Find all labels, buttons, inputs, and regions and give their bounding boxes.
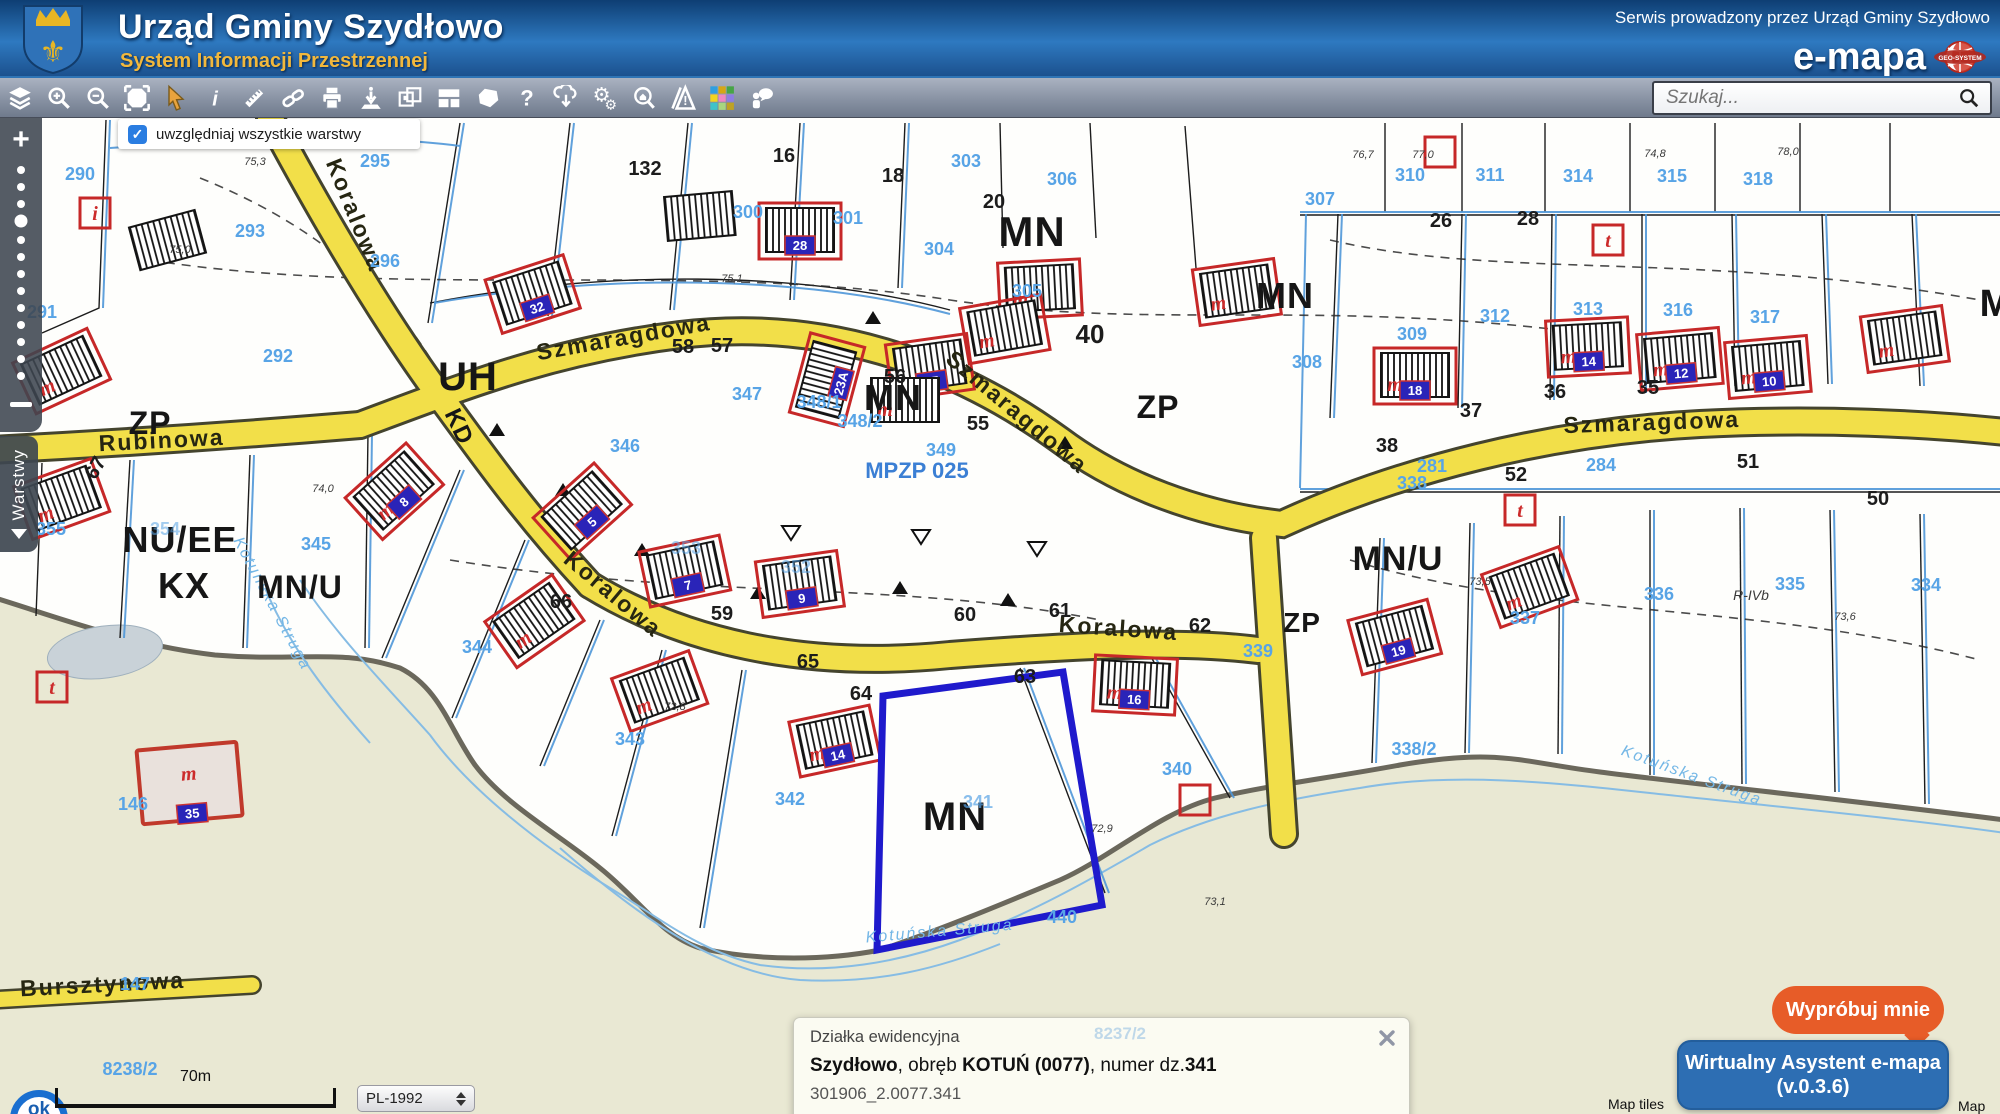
emapa-brand: e-mapa [1793,36,1926,79]
map-label-pn: 341 [963,792,993,812]
map-label-elev: 72,9 [1091,823,1112,835]
map-label-pn: 317 [1750,307,1780,327]
map-label-num: 35 [1637,377,1659,399]
map-label-num: 40 [1076,319,1105,349]
warnings-icon[interactable]: ! [669,83,697,113]
svg-text:m: m [180,762,197,785]
map-label-num: 132 [628,158,661,180]
compare-windows-icon[interactable] [396,83,424,113]
map-label-pn: 293 [235,221,265,241]
map-label-plan: MPZP 025 [865,458,969,483]
map-label-pn: 353 [671,538,701,558]
map-label-num: 16 [773,145,795,167]
map-label-pn: 337 [1510,608,1540,628]
map-svg: 3228m2523Ammmm18m14m12m10mm857m9m14mm161… [0,118,2000,1114]
svg-text:35: 35 [184,805,200,821]
map-label-pn: 340 [1162,759,1192,779]
map-label-pn: 146 [118,794,148,814]
svg-text:10: 10 [1761,373,1777,389]
measure-icon[interactable] [240,83,268,113]
map-label-zone: MN/U [257,569,343,605]
map-label-elev: 78,0 [1777,146,1799,158]
parcel-info-panel: 8237/2 Działka ewidencyjna Szydłowo, obr… [793,1017,1410,1114]
svg-text:m: m [1209,292,1227,316]
map-label-num: 55 [967,413,989,435]
map-label-pn: 334 [1911,575,1941,595]
ok-logo-label: ok [28,1099,50,1114]
map-label-pn: 313 [1573,299,1603,319]
map-label-pn: 312 [1480,306,1510,326]
map-label-pn: 343 [615,729,645,749]
building [664,191,736,241]
search-box [1652,81,1992,115]
assistant-version: (v.0.3.6) [1777,1075,1850,1099]
municipal-crest: ⚜ [22,4,84,74]
map-label-pn: 348/1 [796,392,841,412]
page-title: Urząd Gminy Szydłowo [118,8,504,47]
map-label-pn: 345 [301,534,331,554]
map-label-pn: 352 [781,557,811,577]
map-label-num: 51 [1737,451,1759,473]
map-label-num: 58 [672,336,694,358]
map-label-elev: 74,8 [1644,148,1666,160]
chevron-down-icon [11,529,27,539]
svg-text:18: 18 [1408,383,1422,398]
building: m18 [1374,348,1456,404]
map-label-elev: 72,8 [664,701,686,713]
full-extent-icon[interactable] [123,83,151,113]
crs-value: PL-1992 [366,1090,423,1107]
map-label-pn: 440 [1047,907,1077,927]
map-label-num: 28 [1517,208,1539,230]
map-label-pn: 292 [263,346,293,366]
polygon-icon[interactable] [474,83,502,113]
map-label-zone: ZP [129,405,172,441]
geosystem-logo-icon: GEO-SYSTEM [1932,40,1988,74]
map-label-num: 56 [884,366,906,388]
map-label-pn: 284 [1586,455,1616,475]
map-label-pn: 306 [1047,169,1077,189]
basemaps-grid-icon[interactable] [708,83,736,113]
map-label-num: 26 [1430,210,1452,232]
map-label-pn: 342 [775,789,805,809]
building: 28 [759,203,841,259]
page-subtitle: System Informacji Przestrzennej [120,50,428,73]
map-attribution: Map tiles [1608,1096,1664,1112]
map-label-pn: 335 [1775,574,1805,594]
map-label-num: 59 [711,603,733,625]
map-label-zone: MN/U [1353,540,1444,578]
map-label-num: 20 [983,191,1005,213]
map-label-elev: 75,0 [169,244,191,256]
svg-text:GEO-SYSTEM: GEO-SYSTEM [1938,55,1981,62]
svg-text:28: 28 [793,238,807,253]
toolbar: i ? ⚙⚙ ! [0,76,2000,118]
map-label-pn: 311 [1475,165,1504,185]
svg-text:m: m [1877,339,1895,363]
crs-stepper-icon [456,1092,466,1106]
map-label-num: 36 [1544,381,1566,403]
scale-label: 70m [58,1068,333,1086]
map-label-pn: 339 [1243,641,1273,661]
info-tool-icon[interactable]: i [201,83,229,113]
map-label-num: 66 [550,591,572,613]
parcel-id: 301906_2.0077.341 [810,1084,1393,1104]
map-label-num: 65 [797,651,819,673]
map-label-elev: 73,1 [1204,896,1225,908]
map-label-num: 61 [1049,600,1071,622]
map-label-pn: 338 [1397,473,1427,493]
map-label-pn: 349 [926,440,956,460]
locate-download-icon[interactable] [357,83,385,113]
scale-bar: 70m [55,1088,336,1108]
map-label-num: 18 [882,165,904,187]
map-label-pn: 315 [1657,166,1687,186]
map-label-pn: 307 [1305,189,1335,209]
app-window: 3228m2523Ammmm18m14m12m10mm857m9m14mm161… [0,0,2000,1114]
map-label-zone: ZP [1283,607,1321,638]
map-label-elev: 73,5 [1469,576,1491,588]
svg-text:⚙: ⚙ [605,96,618,111]
map-label-elev: 75,3 [244,156,266,168]
help-icon[interactable]: ? [513,83,541,113]
map-label-pn: 336 [1644,584,1674,604]
print-icon[interactable] [318,83,346,113]
header-bar: ⚜ Urząd Gminy Szydłowo System Informacji… [0,0,2000,77]
map-label-pn: 318 [1743,169,1773,189]
map-label-pn: 304 [924,239,954,259]
pointer-tool-icon[interactable] [162,83,190,113]
map-label-pn: 348/2 [837,411,882,431]
link-icon[interactable] [279,83,307,113]
svg-text:12: 12 [1673,365,1689,381]
feedback-icon[interactable] [747,83,775,113]
layers-tab-label: Warstwy [9,449,29,521]
map-label-elev: 76,7 [1352,149,1374,161]
map-label-zone: KX [158,565,210,606]
map-label-pn: 338/2 [1391,739,1436,759]
building: m35 [137,742,243,827]
map-attribution-right: Map [1958,1098,1985,1114]
virtual-assistant-button[interactable]: Wirtualny Asystent e-mapa (v.0.3.6) [1677,1040,1949,1110]
map-canvas[interactable]: 3228m2523Ammmm18m14m12m10mm857m9m14mm161… [0,118,2000,1114]
search-address-icon[interactable] [630,83,658,113]
crs-selector[interactable]: PL-1992 [357,1085,475,1112]
map-label-pn: 295 [360,151,390,171]
layers-icon[interactable] [6,83,34,113]
ghost-parcel-label: 8237/2 [1094,1024,1146,1044]
map-label-num: 60 [954,604,976,626]
svg-text:i: i [92,203,98,225]
close-icon[interactable] [1377,1028,1397,1048]
map-label-pn: 347 [732,384,762,404]
map-label-pn: 316 [1663,300,1693,320]
layout-panels-icon[interactable] [435,83,463,113]
map-label-pn: 354 [150,519,180,539]
svg-text:?: ? [520,85,533,110]
zoom-out-icon[interactable] [84,83,112,113]
map-label-pn: 344 [462,637,492,657]
map-label-pn: 346 [610,436,640,456]
map-label-num: 52 [1505,464,1527,486]
map-label-pn: 296 [370,251,400,271]
svg-text:16: 16 [1127,692,1142,708]
map-label-elev: 74,0 [312,483,334,495]
svg-text:!: ! [683,93,687,108]
map-label-num: 57 [711,335,733,357]
map-label-zone: ZP [1137,389,1180,425]
map-label-pn: 310 [1395,165,1425,185]
zoom-in-icon[interactable] [45,83,73,113]
map-label-pn: 147 [120,974,150,994]
zoom-out-button[interactable] [10,402,32,407]
zoom-slider[interactable] [0,162,42,392]
map-label-num: 38 [1376,435,1398,457]
map-label-elev: 77,0 [1412,149,1434,161]
map-label-num: 37 [1460,400,1482,422]
assistant-name: Wirtualny Asystent e-mapa [1685,1051,1941,1075]
map-label-pn: 301 [833,208,863,228]
map-label-zone: MN [1256,275,1314,316]
map-label-num: 62 [1189,615,1211,637]
service-note: Serwis prowadzony przez Urząd Gminy Szyd… [1615,8,1990,28]
zoom-control: + [0,118,42,432]
map-label-elev: 75,1 [721,273,742,285]
settings-gears-icon[interactable]: ⚙⚙ [591,83,619,113]
map-label-num: 50 [1867,488,1889,510]
map-label-num: 64 [850,683,873,705]
svg-text:14: 14 [1581,354,1597,370]
layers-checkbox-overlay: ✓ uwzględniaj wszystkie warstwy [118,119,420,149]
map-label-pn: 300 [733,202,763,222]
zoom-in-button[interactable]: + [12,118,30,162]
layers-checkbox[interactable]: ✓ [128,125,147,144]
layers-checkbox-label: uwzględniaj wszystkie warstwy [156,126,361,143]
try-me-button[interactable]: Wypróbuj mnie [1772,986,1944,1034]
try-me-label: Wypróbuj mnie [1786,999,1930,1022]
map-label-pn: 290 [65,164,95,184]
map-label-pn: 314 [1563,166,1593,186]
map-label-zone: M [1980,283,2000,325]
map-label-pn: 303 [951,151,981,171]
parcel-location-line: Szydłowo, obręb KOTUŃ (0077), numer dz.3… [810,1055,1393,1077]
map-label-pn: 305 [1012,281,1042,301]
map-label-pn: 355 [36,519,66,539]
layers-panel-tab[interactable]: Warstwy [0,436,38,552]
svg-text:i: i [212,88,218,110]
map-label-num: 63 [1014,666,1036,688]
map-label-elev: 73,6 [1834,611,1856,623]
svg-text:⚜: ⚜ [40,36,67,69]
search-icon[interactable] [1958,87,1980,109]
map-label-pn: 309 [1397,324,1427,344]
cloud-download-icon[interactable] [552,83,580,113]
map-label-pn: 308 [1292,352,1322,372]
map-label-zone: MN [998,208,1065,255]
map-label-zone: UH [438,355,498,399]
map-label-elev: R-IVb [1733,587,1769,603]
search-input[interactable] [1664,86,1958,110]
